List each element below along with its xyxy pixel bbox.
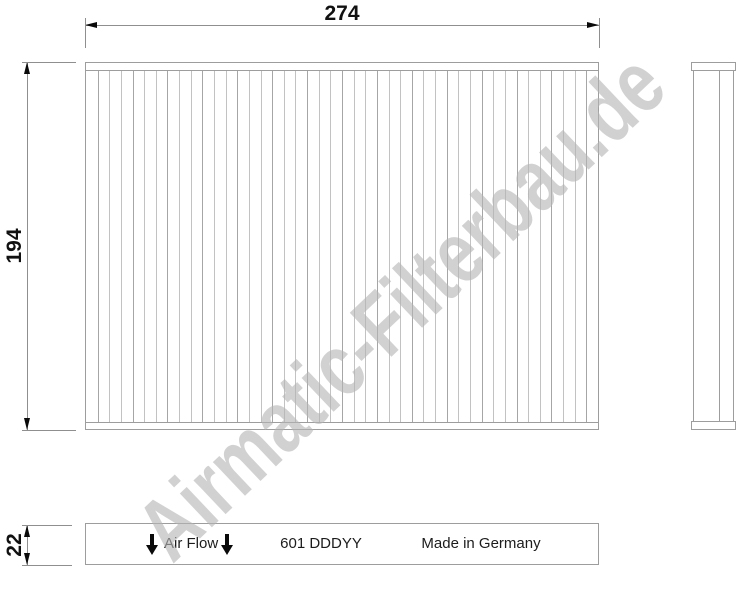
pleat-line <box>342 71 343 422</box>
pleat-line <box>575 71 576 422</box>
dimension-depth-extension-top <box>22 525 72 526</box>
pleat-line <box>226 71 227 422</box>
side-view-bottom-cap <box>691 421 736 430</box>
part-number: 601 DDDYY <box>246 524 396 564</box>
dimension-height-arrowhead-top-icon <box>24 62 30 74</box>
dimension-depth-value: 22 <box>4 509 26 581</box>
air-flow-label: Air Flow <box>164 524 218 564</box>
pleat-line <box>505 71 506 422</box>
dimension-width-value: 274 <box>292 2 392 26</box>
pleat-line <box>423 71 424 422</box>
pleat-line <box>458 71 459 422</box>
dimension-depth-extension-bottom <box>22 565 72 566</box>
dimension-height-arrowhead-bottom-icon <box>24 418 30 430</box>
pleat-lines <box>86 71 598 422</box>
pleat-line <box>563 71 564 422</box>
pleat-line <box>493 71 494 422</box>
pleat-line <box>447 71 448 422</box>
pleat-line <box>133 71 134 422</box>
pleat-line <box>179 71 180 422</box>
pleat-line <box>470 71 471 422</box>
pleat-line <box>400 71 401 422</box>
pleat-line <box>249 71 250 422</box>
pleat-line <box>319 71 320 422</box>
dimension-width-arrowhead-right-icon <box>587 22 599 28</box>
pleat-line <box>191 71 192 422</box>
pleat-line <box>307 71 308 422</box>
pleat-line <box>98 71 99 422</box>
pleat-line <box>354 71 355 422</box>
air-flow-arrow-right-icon <box>221 534 233 555</box>
pleat-line <box>202 71 203 422</box>
dimension-height-line <box>27 62 28 430</box>
pleat-line <box>517 71 518 422</box>
pleat-line <box>214 71 215 422</box>
pleat-line <box>261 71 262 422</box>
technical-drawing: Air Flow 601 DDDYY Made in Germany 274 1… <box>0 0 755 600</box>
pleat-line <box>237 71 238 422</box>
pleat-line <box>365 71 366 422</box>
dimension-height-extension-bottom <box>22 430 76 431</box>
pleat-line <box>109 71 110 422</box>
dimension-height-value: 194 <box>4 210 26 282</box>
pleat-line <box>412 71 413 422</box>
dimension-width-extension-left <box>85 18 86 48</box>
pleat-line <box>272 71 273 422</box>
filter-end-view: Air Flow 601 DDDYY Made in Germany <box>85 523 599 565</box>
pleat-line <box>295 71 296 422</box>
air-flow-arrow-left-icon <box>146 534 158 555</box>
dimension-height-extension-top <box>22 62 76 63</box>
made-in-germany-label: Made in Germany <box>416 524 546 564</box>
pleat-line <box>284 71 285 422</box>
side-view-inner-line <box>719 71 720 421</box>
pleat-line <box>540 71 541 422</box>
pleat-line <box>144 71 145 422</box>
pleat-line <box>528 71 529 422</box>
side-view-top-cap <box>691 62 736 71</box>
pleat-line <box>586 71 587 422</box>
dimension-width-extension-right <box>599 18 600 48</box>
pleat-line <box>435 71 436 422</box>
pleat-line <box>156 71 157 422</box>
pleat-line <box>482 71 483 422</box>
dimension-width-arrowhead-left-icon <box>85 22 97 28</box>
filter-side-view <box>693 62 734 430</box>
pleat-line <box>551 71 552 422</box>
pleat-line <box>121 71 122 422</box>
frame-bottom-line <box>86 422 598 423</box>
pleat-line <box>377 71 378 422</box>
filter-top-view <box>85 62 599 430</box>
pleat-line <box>167 71 168 422</box>
pleat-line <box>330 71 331 422</box>
pleat-line <box>389 71 390 422</box>
